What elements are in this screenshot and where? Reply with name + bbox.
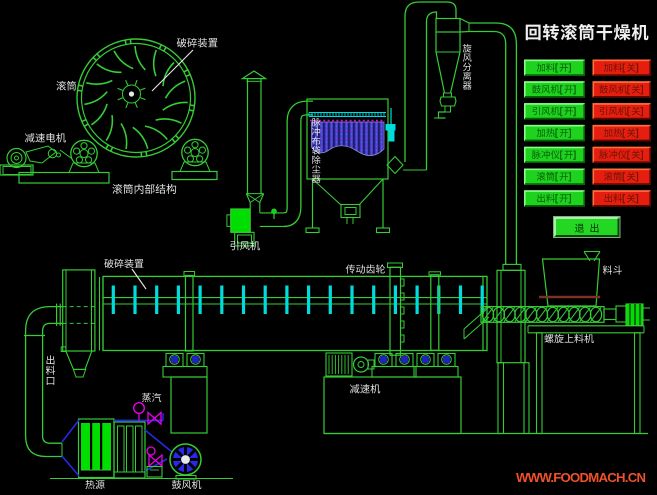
- svg-text:WWW.FOODMACH.CN: WWW.FOODMACH.CN: [516, 470, 646, 485]
